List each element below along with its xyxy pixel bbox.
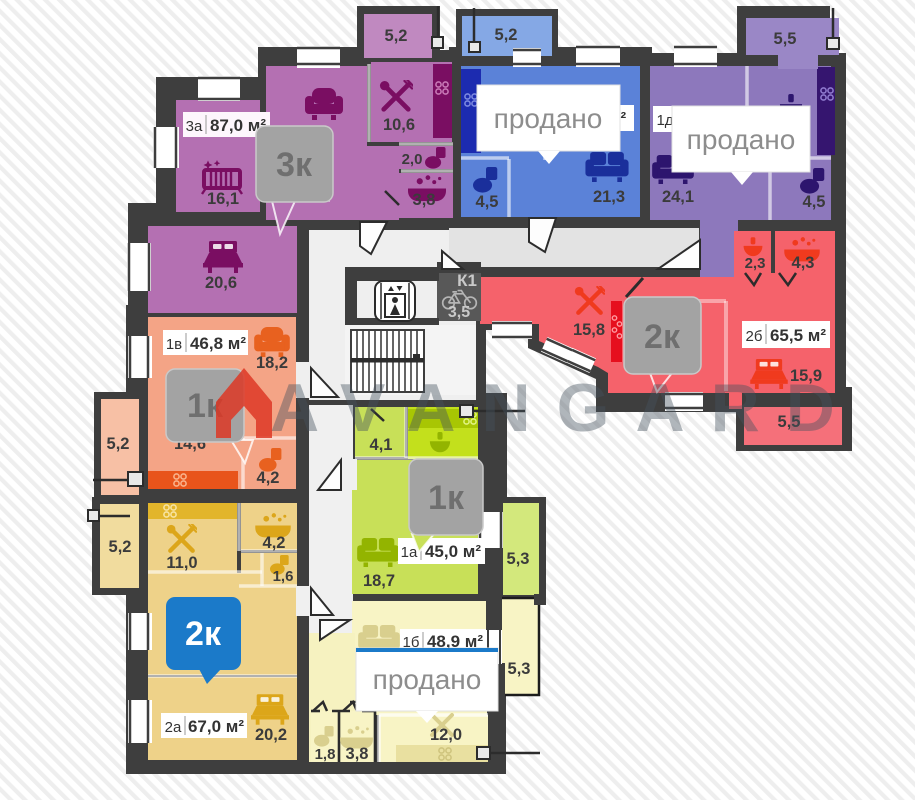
svg-text:2а: 2а	[165, 719, 182, 736]
svg-text:4,2: 4,2	[257, 469, 280, 487]
svg-text:5,2: 5,2	[109, 538, 132, 556]
svg-text:18,7: 18,7	[363, 572, 395, 590]
svg-text:К1: К1	[457, 271, 477, 290]
svg-text:3а: 3а	[186, 118, 203, 135]
svg-text:продано: продано	[373, 664, 482, 695]
svg-text:продано: продано	[494, 103, 603, 134]
svg-text:11,0: 11,0	[166, 554, 197, 572]
svg-text:4,5: 4,5	[476, 193, 499, 211]
svg-text:24,1: 24,1	[662, 188, 694, 206]
svg-text:4,5: 4,5	[803, 193, 826, 211]
svg-text:2к: 2к	[644, 318, 681, 356]
svg-text:3,8: 3,8	[346, 745, 369, 763]
svg-text:5,2: 5,2	[107, 435, 130, 453]
svg-text:20,6: 20,6	[205, 274, 237, 292]
svg-text:1,6: 1,6	[273, 568, 294, 585]
svg-text:5,3: 5,3	[507, 550, 530, 568]
svg-text:21,3: 21,3	[593, 188, 625, 206]
svg-text:4,3: 4,3	[792, 254, 815, 272]
svg-text:5,3: 5,3	[508, 660, 531, 678]
svg-text:67,0 м²: 67,0 м²	[188, 717, 244, 736]
svg-text:1,8: 1,8	[315, 746, 336, 763]
svg-text:2к: 2к	[185, 615, 222, 653]
svg-text:3к: 3к	[276, 146, 313, 184]
svg-text:5,2: 5,2	[495, 26, 518, 44]
svg-text:16,1: 16,1	[207, 190, 239, 208]
svg-text:5,5: 5,5	[774, 30, 797, 48]
svg-text:1а: 1а	[401, 544, 418, 561]
svg-text:2б: 2б	[746, 328, 763, 345]
svg-text:45,0 м²: 45,0 м²	[425, 542, 481, 561]
svg-text:3,5: 3,5	[448, 304, 470, 321]
svg-text:1в: 1в	[166, 336, 182, 353]
svg-text:продано: продано	[687, 124, 796, 155]
svg-text:46,8 м²: 46,8 м²	[190, 334, 246, 353]
svg-text:12,0: 12,0	[430, 726, 462, 744]
svg-text:20,2: 20,2	[255, 726, 287, 744]
svg-text:65,5 м²: 65,5 м²	[770, 326, 826, 345]
svg-text:2,3: 2,3	[745, 255, 766, 272]
svg-text:AVANGARD: AVANGARD	[270, 370, 861, 446]
svg-text:10,6: 10,6	[383, 116, 415, 134]
svg-text:5,2: 5,2	[385, 27, 408, 45]
svg-text:2,0: 2,0	[402, 151, 423, 168]
svg-text:15,8: 15,8	[573, 321, 605, 339]
svg-text:3,8: 3,8	[413, 191, 436, 209]
svg-text:4,2: 4,2	[263, 534, 286, 552]
svg-text:1к: 1к	[428, 479, 465, 517]
svg-text:1д: 1д	[656, 112, 673, 129]
